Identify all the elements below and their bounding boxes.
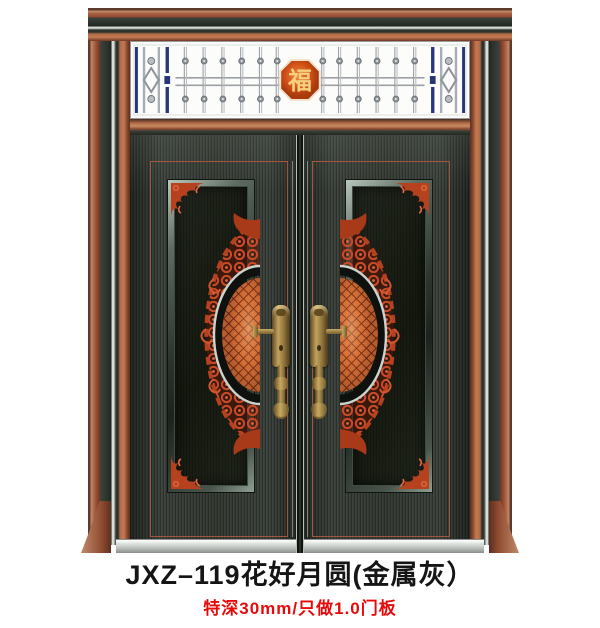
half-moon-medallion <box>194 209 260 459</box>
fu-character: 福 <box>287 68 312 95</box>
product-title: JXZ–119花好月圆(金属灰） <box>0 560 600 591</box>
product-subtitle: 特深30mm/只做1.0门板 <box>0 594 600 619</box>
handle-lever <box>326 329 344 334</box>
handle-grip <box>315 365 323 411</box>
transom-glass-art: 福 <box>130 41 470 119</box>
handle-backplate <box>310 305 328 367</box>
transom-sill <box>130 119 470 135</box>
door-frame-head <box>88 8 512 41</box>
door-leaf-right <box>300 135 470 553</box>
door-panel <box>168 180 254 492</box>
door-leaves <box>130 135 470 553</box>
door-frame-jamb-left <box>88 8 130 545</box>
handle-lever <box>256 329 274 334</box>
handle-grip <box>277 365 285 411</box>
door-handle-left <box>256 305 294 420</box>
door-handle-right <box>306 305 344 420</box>
door-seam <box>296 135 304 553</box>
door-opening: 福 <box>130 41 470 553</box>
handle-backplate <box>272 305 290 367</box>
door-panel <box>346 180 432 492</box>
door-frame-jamb-right <box>470 8 512 545</box>
half-moon-medallion <box>340 209 406 459</box>
product-photo: 福 <box>0 0 600 628</box>
security-door: 福 <box>88 8 512 553</box>
transom-window: 福 <box>130 41 470 119</box>
door-leaf-left <box>130 135 300 553</box>
caption: JXZ–119花好月圆(金属灰） 特深30mm/只做1.0门板 <box>0 560 600 619</box>
fu-medallion: 福 <box>280 60 320 100</box>
